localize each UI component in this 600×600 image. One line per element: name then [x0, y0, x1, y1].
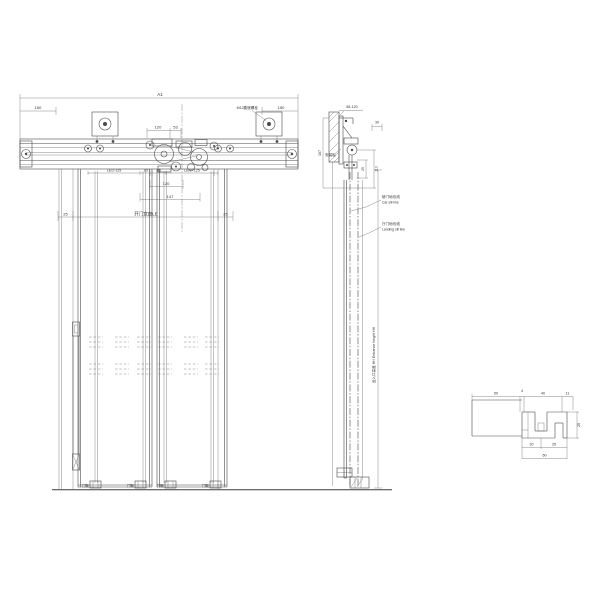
- sill-profile-detail: 50 4 40 11 20 25 60 25: [472, 389, 581, 459]
- label-door-shoe-4: 门靴: [202, 483, 210, 488]
- wall-hatch: [329, 112, 339, 486]
- note-expansion-bolt: M12膨胀螺栓: [237, 105, 259, 110]
- dim-20: 20: [530, 443, 534, 447]
- dim-right-150: 150: [278, 105, 285, 110]
- door-panel-right: [157, 169, 227, 487]
- dim-167: 167: [318, 150, 322, 156]
- label-door-shoe-1: 门靴: [82, 483, 90, 488]
- dim-left-150: 150: [35, 105, 42, 110]
- dim-25-bottom: 25: [552, 443, 556, 447]
- section-sills: [337, 468, 369, 488]
- dim-le2-minus: LE/2-125: [107, 169, 122, 173]
- dim-60: 60: [543, 454, 547, 458]
- dim-overall-width: A1: [157, 92, 163, 97]
- mounting-plate-left: [92, 112, 118, 143]
- dim-147: 147: [167, 194, 174, 199]
- dim-40: 40: [541, 392, 545, 396]
- entrance-height-dimension: 出入口高度 HH Entrance height HH: [371, 170, 382, 488]
- mounting-plate-right: [256, 112, 282, 143]
- dim-25-right: 25: [223, 212, 228, 217]
- dim-53: 53: [173, 125, 178, 130]
- label-door-shoe-2: 门靴: [127, 483, 135, 488]
- label-mounting-plate: 安装板: [325, 152, 336, 157]
- dim-le2-plus: LE/2+125: [184, 169, 200, 173]
- hanger-chain-dimensions: LE/2-125 85 85 LE/2+125 120 147: [88, 169, 218, 202]
- track-bracket-section: [339, 116, 358, 180]
- section-door-panel: [344, 172, 363, 486]
- door-panel-left: [78, 169, 152, 487]
- dim-25-section: 25: [361, 167, 365, 171]
- dim-4: 4: [521, 389, 523, 393]
- dim-entrance-height: 出入口高度 HH Entrance height HH: [371, 326, 376, 383]
- sill-extrusion-outline: [522, 412, 567, 438]
- dim-11: 11: [566, 392, 570, 396]
- label-car-sill-en: Car sill line: [382, 201, 399, 205]
- dim-30: 30: [375, 121, 379, 125]
- detail-dimensions: 50 4 40 11 20 25 60 25: [472, 389, 581, 459]
- dim-120-top: 120: [155, 125, 162, 130]
- dim-25-right: 25: [577, 423, 581, 427]
- front-elevation-view: A1 150 150 M12膨胀螺栓 120 53 LE/2-125: [20, 92, 392, 490]
- dim-85-120: 85-120: [346, 105, 357, 109]
- dim-25-left: 25: [63, 212, 68, 217]
- label-landing-sill-cn: 厅门地坎线: [382, 221, 400, 226]
- dim-85-b: 85: [157, 169, 161, 173]
- jamb-safety-strip: [73, 322, 80, 470]
- hidden-line-clusters: [89, 337, 219, 374]
- label-car-sill-cn: 轿门地坎线: [382, 194, 400, 199]
- label-door-shoe-3: 门靴: [157, 483, 165, 488]
- label-opening-width: 开门宽度LE: [134, 211, 158, 218]
- label-landing-sill-en: Landing sill line: [382, 228, 405, 232]
- side-section-view: 85-120 30 167 安装板 25 110: [318, 105, 405, 488]
- dim-85-a: 85: [144, 169, 148, 173]
- drawing-canvas: A1 150 150 M12膨胀螺栓 120 53 LE/2-125: [0, 0, 600, 600]
- floor-recess-outline: [472, 400, 522, 436]
- dim-50: 50: [494, 392, 498, 396]
- elevator-door-drawing: A1 150 150 M12膨胀螺栓 120 53 LE/2-125: [0, 0, 600, 600]
